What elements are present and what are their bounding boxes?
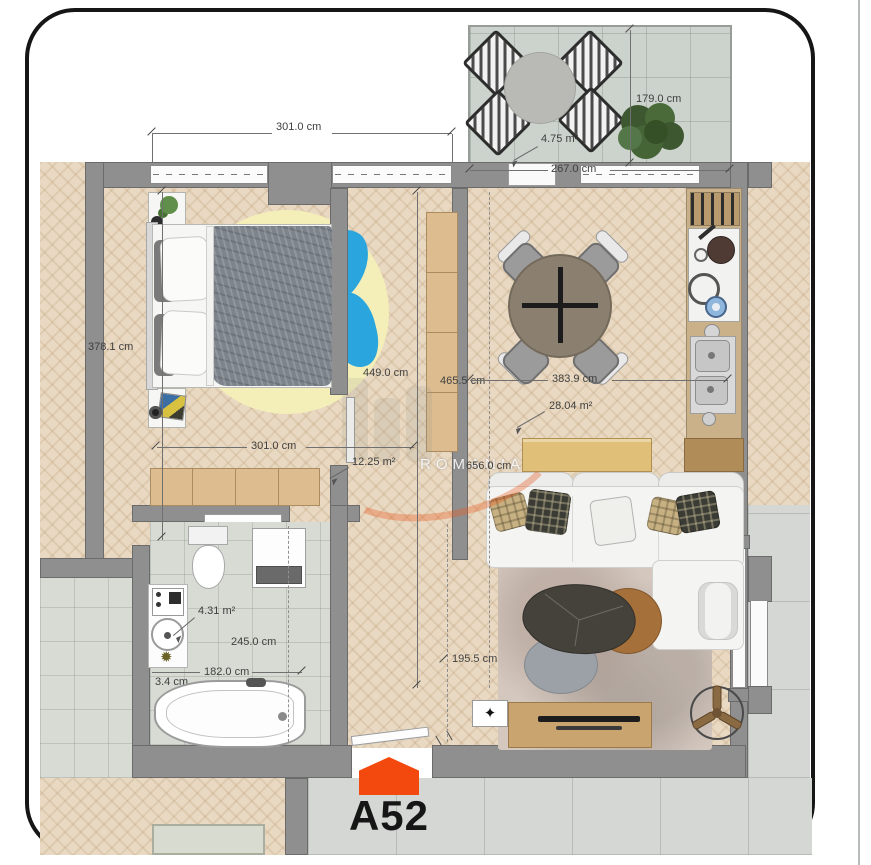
chaise-pillow [698,582,738,640]
dim-terrace-width: 267.0 cm [551,163,596,176]
dim-bathroom-length: 245.0 cm [231,636,276,649]
wardrobe-divider [278,468,279,506]
corner-cabinet [684,438,744,472]
wall-segment [330,505,348,748]
dim-line [610,170,730,171]
wall-segment [85,162,104,562]
sink-faucet [702,412,716,426]
bed-pillow [159,236,210,302]
wall-pillar [268,162,332,205]
toilet-tank [188,526,228,545]
bed-pillow [159,310,210,376]
pan-icon [707,236,735,264]
toilet-bowl [192,545,225,589]
boiler-knob [156,592,161,597]
dim-line [252,672,302,673]
wall-segment [748,686,772,714]
dim-line [288,526,289,742]
floor-plan-canvas: ✦ ✹ 3.4 cm ROMANIA 301.0 cm [0,0,871,865]
dim-line [332,133,452,134]
stove-burner [694,248,708,262]
sofa-seam [572,496,573,562]
wardrobe-divider [235,468,236,506]
tv-stand [508,702,652,748]
dim-line [447,524,448,742]
sink-drain [707,386,714,393]
wall-segment [330,188,348,395]
dim-ext-line [152,134,153,162]
ceiling-fan-icon [688,684,746,742]
boiler-panel [169,592,181,604]
kettle-lid [712,303,720,311]
neighbor-window [750,600,768,688]
dim-line [152,672,200,673]
wall-segment [748,556,772,602]
doormat [152,824,265,855]
dim-bedroom-top: 301.0 cm [276,121,321,134]
terrace-door-opening [508,163,556,186]
sofa-pillow [675,490,721,534]
sink-drain [164,632,171,639]
sink-drain [708,352,715,359]
dim-line [612,380,728,381]
unit-label: A52 [339,792,439,840]
wardrobe-divider [192,468,193,506]
bedroom-window [150,165,268,184]
dim-bathroom-width: 182.0 cm [204,666,249,679]
dining-table-cross [558,267,563,343]
bedroom-window [332,165,452,184]
dim-line [157,447,247,448]
wall-segment [748,162,772,188]
dim-living-left: 465.5 cm [440,375,485,388]
dim-ext-line [452,134,453,162]
dim-living-total: 656.0 cm [466,460,511,473]
lamp-icon [149,406,162,419]
bathtub-basin [166,690,294,738]
cabinet-shelf-line [426,332,458,333]
bed-blanket [212,226,332,386]
bathtub-drain [278,712,287,721]
terrace-table-icon [505,53,575,123]
dim-line [152,133,272,134]
floor-neighbor-bathroom [40,578,132,778]
dim-living-area: 28.04 m² [549,400,592,413]
tv-icon [538,716,640,722]
dim-line [470,380,548,381]
dim-terrace-area: 4.75 m² [541,133,578,146]
sofa-pillow [589,495,637,546]
dim-line [489,192,490,688]
dim-bedroom-bottom: 301.0 cm [251,440,296,453]
bathtub-faucet [246,678,266,687]
kitchen-knife-block [690,192,740,226]
sofa-pillow [524,488,571,535]
dim-bathroom-area: 4.31 m² [198,605,235,618]
wall-segment [132,745,352,778]
wall-segment [285,778,308,855]
bed-sheet-fold [206,226,214,386]
dim-line [417,192,418,688]
floor-neighbor-right [748,162,810,505]
star-card: ✦ [472,700,508,727]
dim-line [630,30,631,166]
dim-bedroom-area: 12.25 m² [352,456,395,469]
cabinet-shelf-line [426,272,458,273]
dim-terrace-depth: 179.0 cm [636,93,681,106]
coffee-table-organic [515,580,643,658]
dim-line [470,170,548,171]
dim-line [306,447,414,448]
dim-living-width: 383.9 cm [552,373,597,386]
washing-machine-front [256,566,302,584]
dim-hall-length: 449.0 cm [363,367,408,380]
living-window [580,165,700,184]
soap-decor-icon: ✹ [160,650,176,666]
dim-entry-length: 195.5 cm [452,653,497,666]
boiler-knob [156,602,161,607]
dim-bedroom-left: 378.1 cm [88,341,133,354]
soundbar-icon [556,726,622,730]
dim-line [162,192,163,540]
page-edge-line [858,0,860,865]
